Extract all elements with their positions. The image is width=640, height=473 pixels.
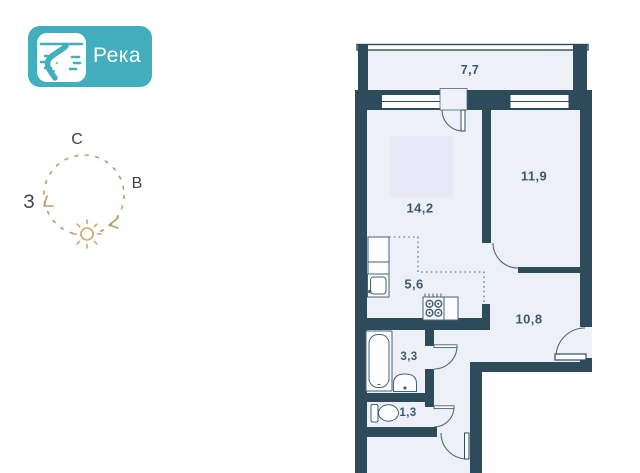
compass-east-label: В [132, 175, 143, 193]
compass-arrow-right [109, 218, 118, 228]
area-label-bathroom: 3,3 [400, 351, 417, 363]
wall-bathroom-upper [425, 330, 434, 346]
bathroom-door-leaf [434, 345, 457, 348]
stove-icon [423, 294, 458, 321]
wall-wc-bottom [355, 427, 437, 437]
wall-living-bedroom-divider [482, 110, 491, 243]
compass-north-label: С [71, 131, 83, 149]
wall-hallway-bottom [470, 362, 592, 372]
living-room-rug [390, 136, 453, 197]
logo-text: Река [93, 44, 141, 68]
floor-plan [355, 45, 592, 473]
compass-rose [44, 155, 124, 248]
balcony-door-leaf [461, 110, 465, 131]
area-label-balcony: 7,7 [461, 63, 480, 77]
wall-left-exterior [355, 90, 367, 473]
wall-balcony-left [358, 45, 368, 90]
area-label-living-room: 14,2 [407, 201, 434, 216]
compass-west-label: З [23, 192, 34, 214]
balcony-parapet [357, 45, 588, 51]
wall-kitchen-stub [482, 304, 490, 318]
sun-icon [73, 220, 101, 248]
bathtub-icon [366, 331, 392, 391]
toilet-icon [371, 405, 399, 423]
kitchen-sink-icon [368, 274, 390, 297]
entrance-door-leaf [555, 354, 586, 360]
balcony-door-opening [440, 89, 467, 111]
wall-corridor-right [470, 362, 482, 473]
wc-door-leaf [434, 406, 454, 409]
kitchen-cabinet-icon [368, 262, 389, 274]
wall-bedroom-bottom [518, 267, 580, 273]
area-label-kitchen: 5,6 [404, 277, 423, 292]
area-label-bedroom: 11,9 [521, 169, 547, 184]
kitchen-cabinet-icon [368, 237, 389, 262]
wall-right-exterior [580, 110, 592, 327]
area-label-wc: 1,3 [399, 407, 416, 419]
area-label-hallway: 10,8 [516, 312, 543, 327]
washbasin-icon [394, 374, 417, 392]
corridor-door-leaf [465, 433, 470, 459]
scene-graphic [0, 0, 640, 473]
wall-bathroom-wc-divider [367, 393, 434, 402]
wall-balcony-right [573, 45, 587, 90]
floor-plan-page: Река С В З 7,7 14,2 11,9 5,6 10,8 3,3 1,… [0, 0, 640, 473]
entrance-door-opening [580, 327, 592, 358]
